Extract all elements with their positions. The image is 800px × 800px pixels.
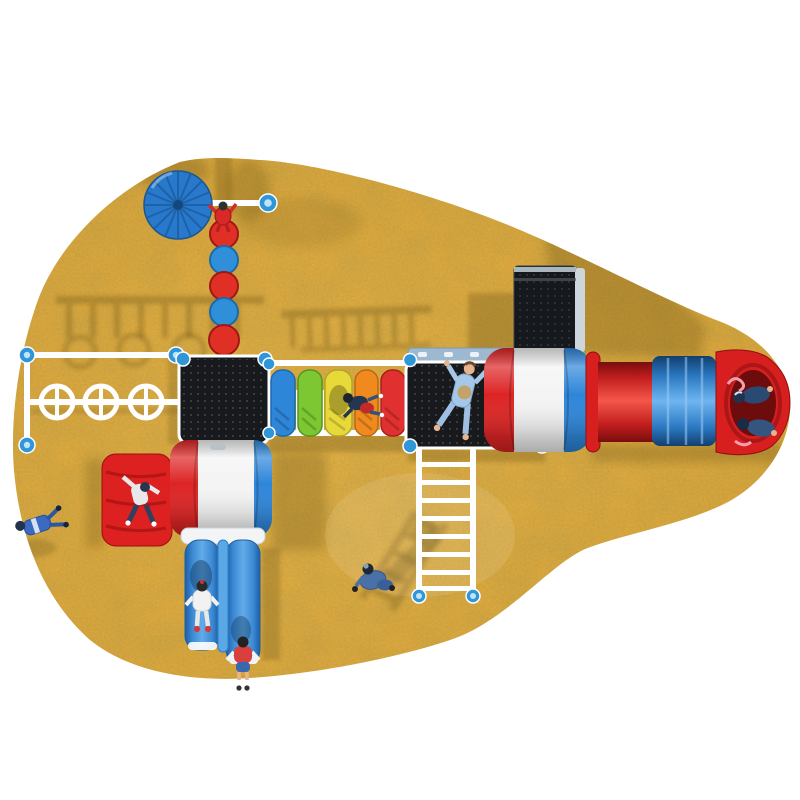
- spinner-wheel: [85, 386, 117, 418]
- climbing-wall-panel: [514, 266, 585, 354]
- wall-side-rail: [575, 268, 585, 352]
- wall-top-rung: [514, 267, 576, 272]
- sun-umbrella: [144, 171, 212, 239]
- slide-end-lip: [188, 642, 217, 650]
- kid-head: [238, 637, 249, 648]
- tube-section-blue: [652, 356, 716, 446]
- playground-render: [0, 0, 800, 800]
- barrel-tower: [170, 440, 272, 537]
- kid-shorts: [236, 662, 250, 672]
- kid-head: [219, 202, 228, 211]
- climb-discs: [209, 220, 239, 355]
- barrel-handle: [210, 444, 226, 450]
- slide-divider: [218, 540, 228, 652]
- bridge-corner-cap: [263, 427, 275, 439]
- deck-corner-cap: [403, 439, 417, 453]
- disc-red: [209, 325, 239, 355]
- playground-scene: [0, 0, 800, 800]
- spinner-wheel: [130, 386, 162, 418]
- kid-shirt: [234, 646, 252, 663]
- deck-corner-cap: [176, 352, 190, 366]
- deck-corner-cap: [404, 354, 417, 367]
- bridge-corner-cap: [263, 358, 275, 370]
- wall-perforation: [517, 270, 573, 350]
- disc-blue: [210, 298, 238, 326]
- kid-head: [343, 393, 353, 403]
- left-play-deck: [176, 352, 272, 444]
- tube-flange: [586, 352, 600, 452]
- umbrella-hub: [173, 200, 183, 210]
- disc-blue: [210, 246, 238, 274]
- spinner-wheel: [41, 386, 73, 418]
- frame-top-bar: [24, 352, 172, 358]
- kid-head: [737, 418, 749, 430]
- bar-end-cap-center: [264, 199, 272, 207]
- crawl-tube-slide: [598, 350, 790, 455]
- wall-rung: [514, 278, 576, 281]
- tube-section-red: [598, 362, 654, 442]
- deck-perforation: [182, 359, 266, 441]
- round-tower: [484, 348, 600, 452]
- rainbow-crawl-bridge: [263, 358, 412, 439]
- disc-red: [210, 272, 238, 300]
- bridge-rail-top: [266, 360, 412, 366]
- red-rock-climber: [102, 454, 172, 546]
- person-head: [140, 482, 150, 492]
